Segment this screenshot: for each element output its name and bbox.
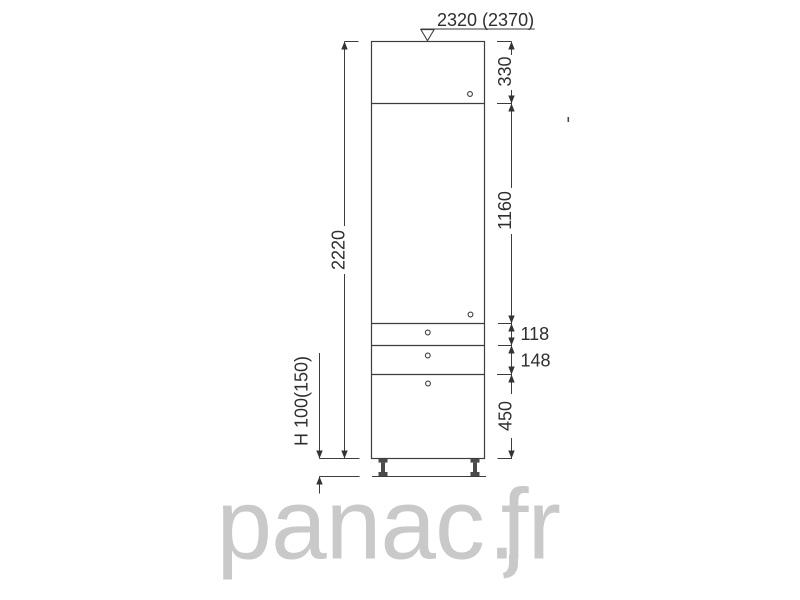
svg-text:panac.fr: panac.fr <box>217 469 560 581</box>
svg-text:118: 118 <box>521 324 550 344</box>
svg-text:H 100(150): H 100(150) <box>292 356 312 446</box>
svg-text:450: 450 <box>496 401 516 431</box>
svg-text:330: 330 <box>495 56 515 86</box>
svg-text:1160: 1160 <box>495 191 515 230</box>
svg-text:148: 148 <box>521 351 551 371</box>
svg-text:2220: 2220 <box>329 230 349 270</box>
svg-text:2320 (2370): 2320 (2370) <box>437 10 534 30</box>
